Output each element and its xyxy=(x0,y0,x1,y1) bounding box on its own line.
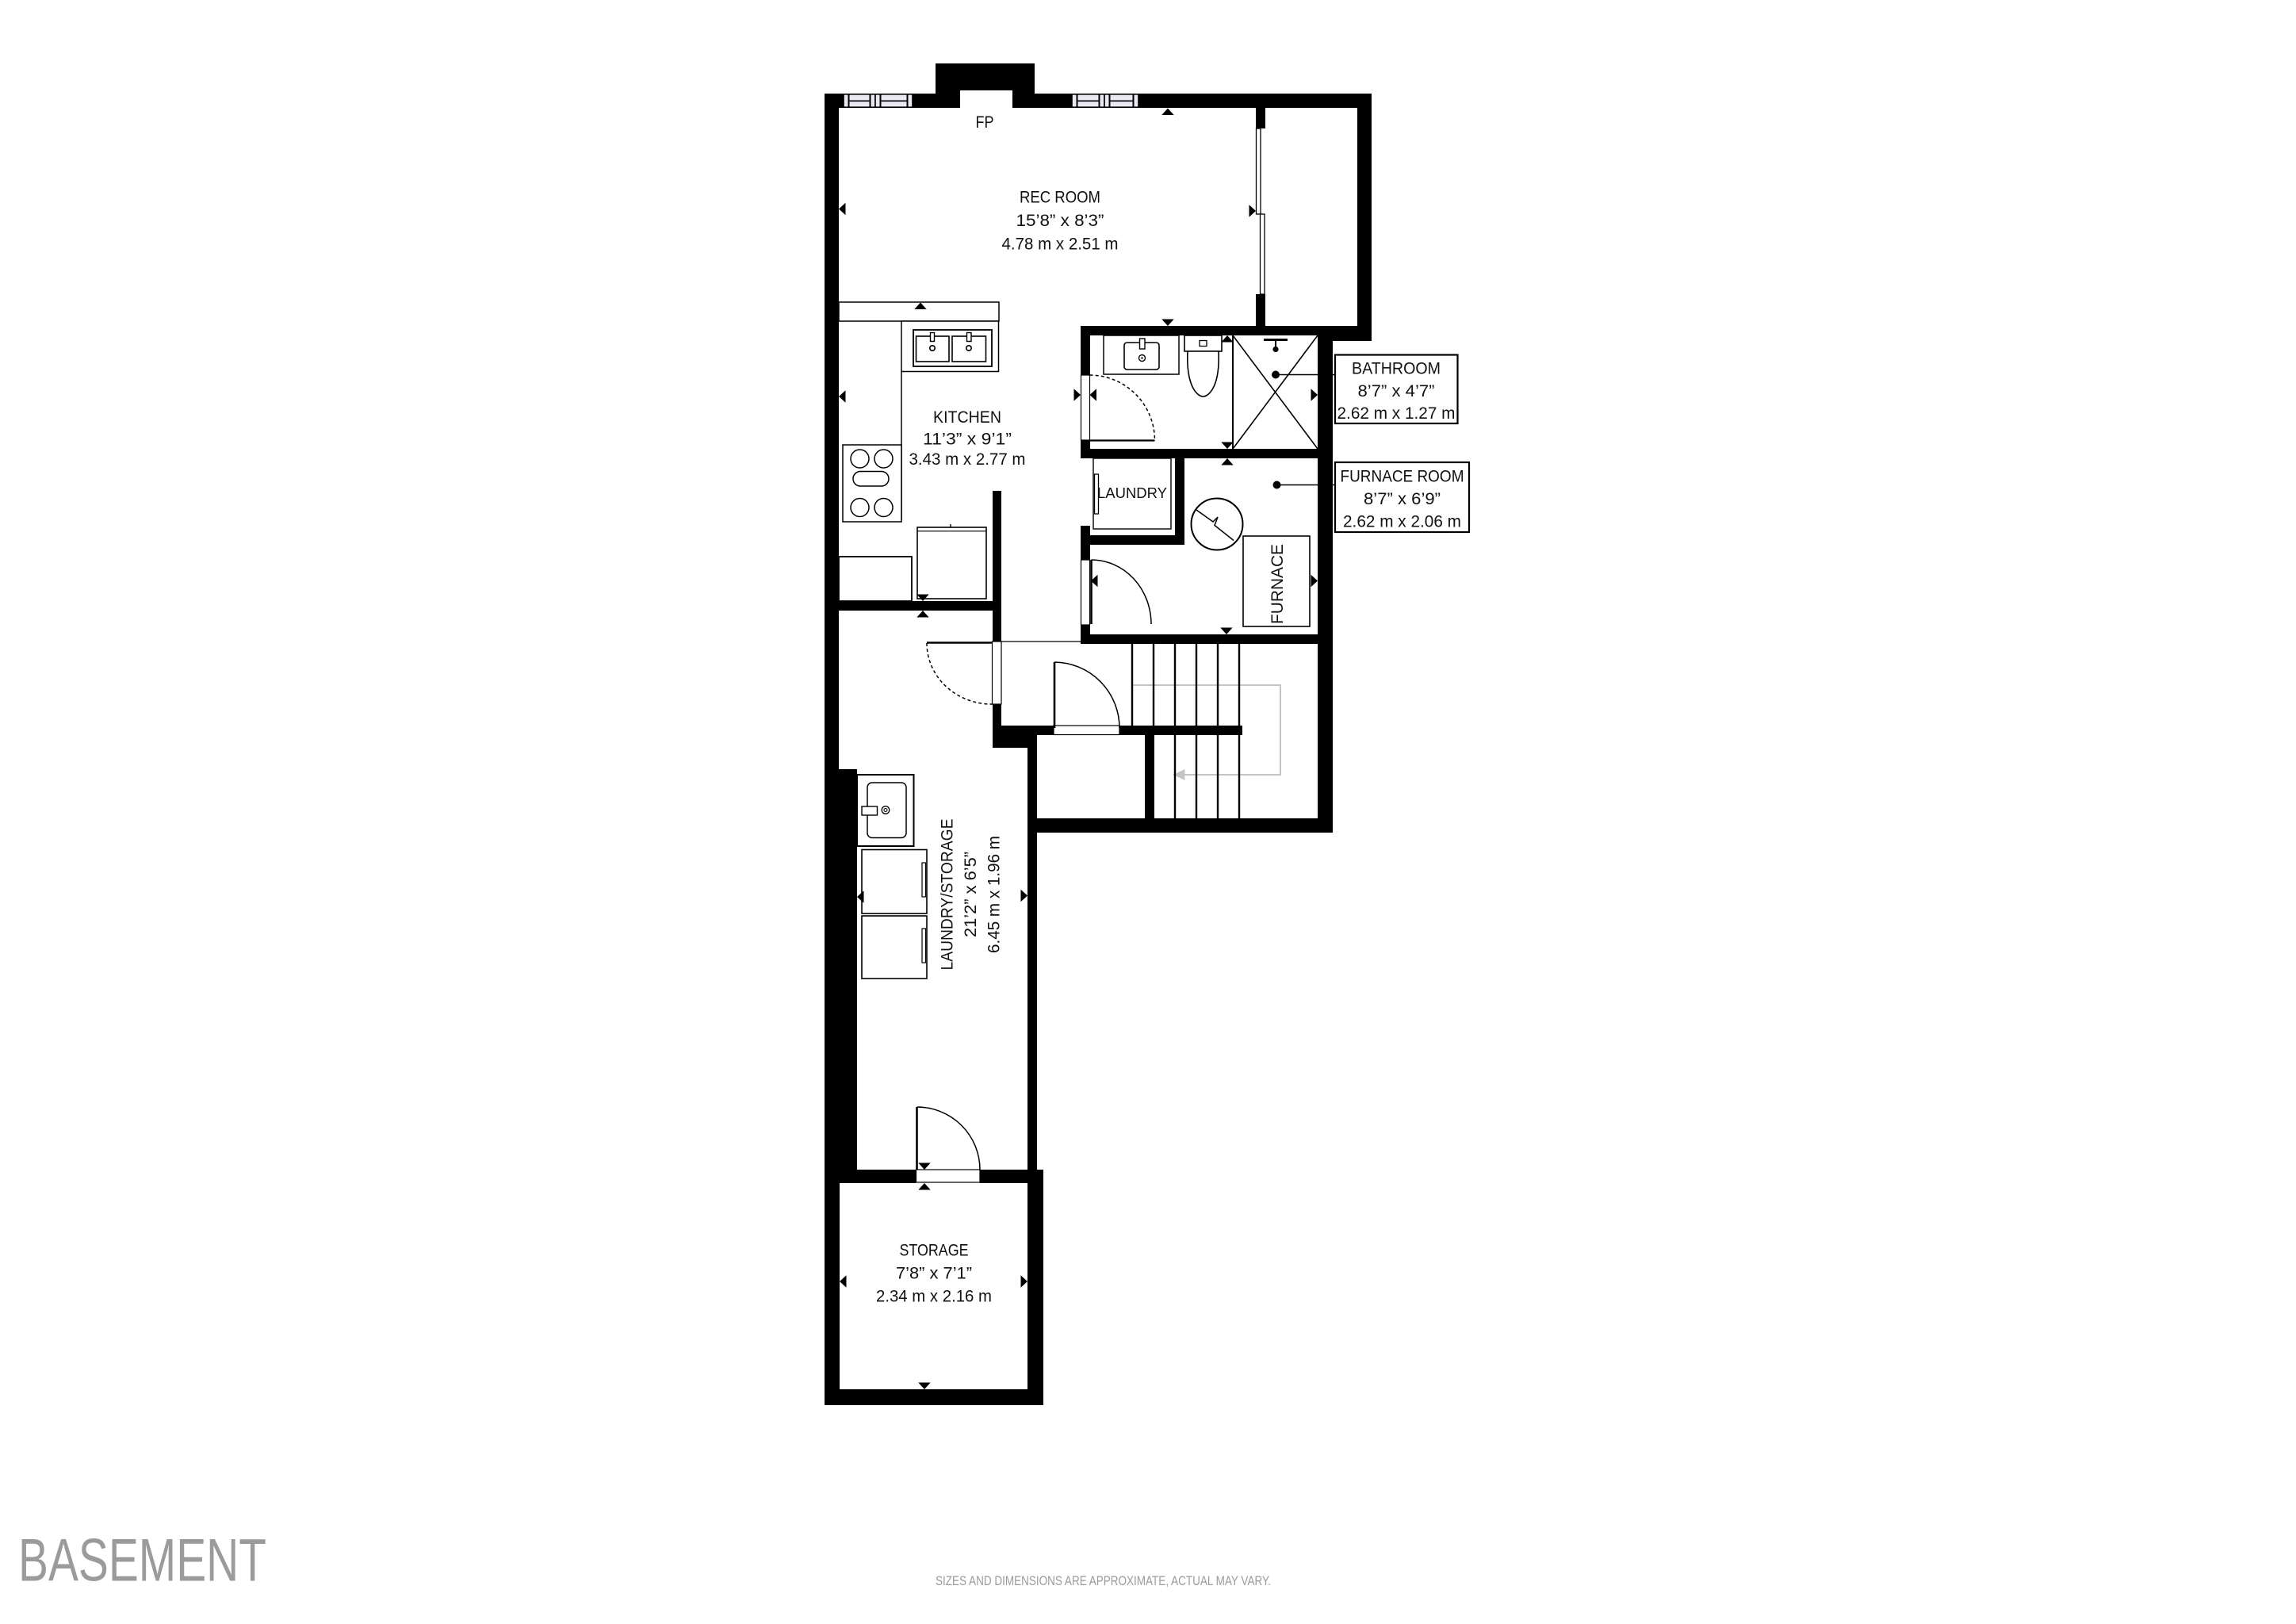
svg-text:FURNACE: FURNACE xyxy=(1269,544,1287,624)
svg-text:KITCHEN: KITCHEN xyxy=(933,408,1001,427)
svg-text:21’2” x 6’5”: 21’2” x 6’5” xyxy=(961,852,980,937)
svg-text:3.43 m x 2.77 m: 3.43 m x 2.77 m xyxy=(909,450,1026,469)
svg-text:SIZES AND DIMENSIONS ARE APPRO: SIZES AND DIMENSIONS ARE APPROXIMATE, AC… xyxy=(936,1574,1271,1588)
svg-text:7’8” x 7’1”: 7’8” x 7’1” xyxy=(896,1264,972,1283)
svg-text:REC ROOM: REC ROOM xyxy=(1020,188,1100,207)
svg-text:8’7” x 4’7”: 8’7” x 4’7” xyxy=(1358,382,1435,400)
svg-text:4.78 m x 2.51 m: 4.78 m x 2.51 m xyxy=(1002,235,1119,254)
svg-text:2.62 m x 2.06 m: 2.62 m x 2.06 m xyxy=(1343,513,1461,531)
svg-text:LAUNDRY: LAUNDRY xyxy=(1097,485,1167,501)
svg-text:STORAGE: STORAGE xyxy=(900,1241,969,1260)
svg-text:8’7” x 6’9”: 8’7” x 6’9” xyxy=(1364,490,1441,508)
svg-text:LAUNDRY/STORAGE: LAUNDRY/STORAGE xyxy=(938,819,957,971)
svg-text:FP: FP xyxy=(976,113,994,132)
svg-text:2.34 m x 2.16 m: 2.34 m x 2.16 m xyxy=(876,1287,992,1306)
svg-text:6.45 m x 1.96 m: 6.45 m x 1.96 m xyxy=(985,836,1004,953)
svg-text:BATHROOM: BATHROOM xyxy=(1352,360,1441,378)
svg-text:15’8” x 8’3”: 15’8” x 8’3” xyxy=(1016,211,1104,230)
svg-text:BASEMENT: BASEMENT xyxy=(18,1527,266,1595)
svg-text:11’3” x 9’1”: 11’3” x 9’1” xyxy=(923,430,1012,449)
svg-text:2.62 m x 1.27 m: 2.62 m x 1.27 m xyxy=(1337,404,1456,423)
svg-text:FURNACE ROOM: FURNACE ROOM xyxy=(1341,468,1464,486)
